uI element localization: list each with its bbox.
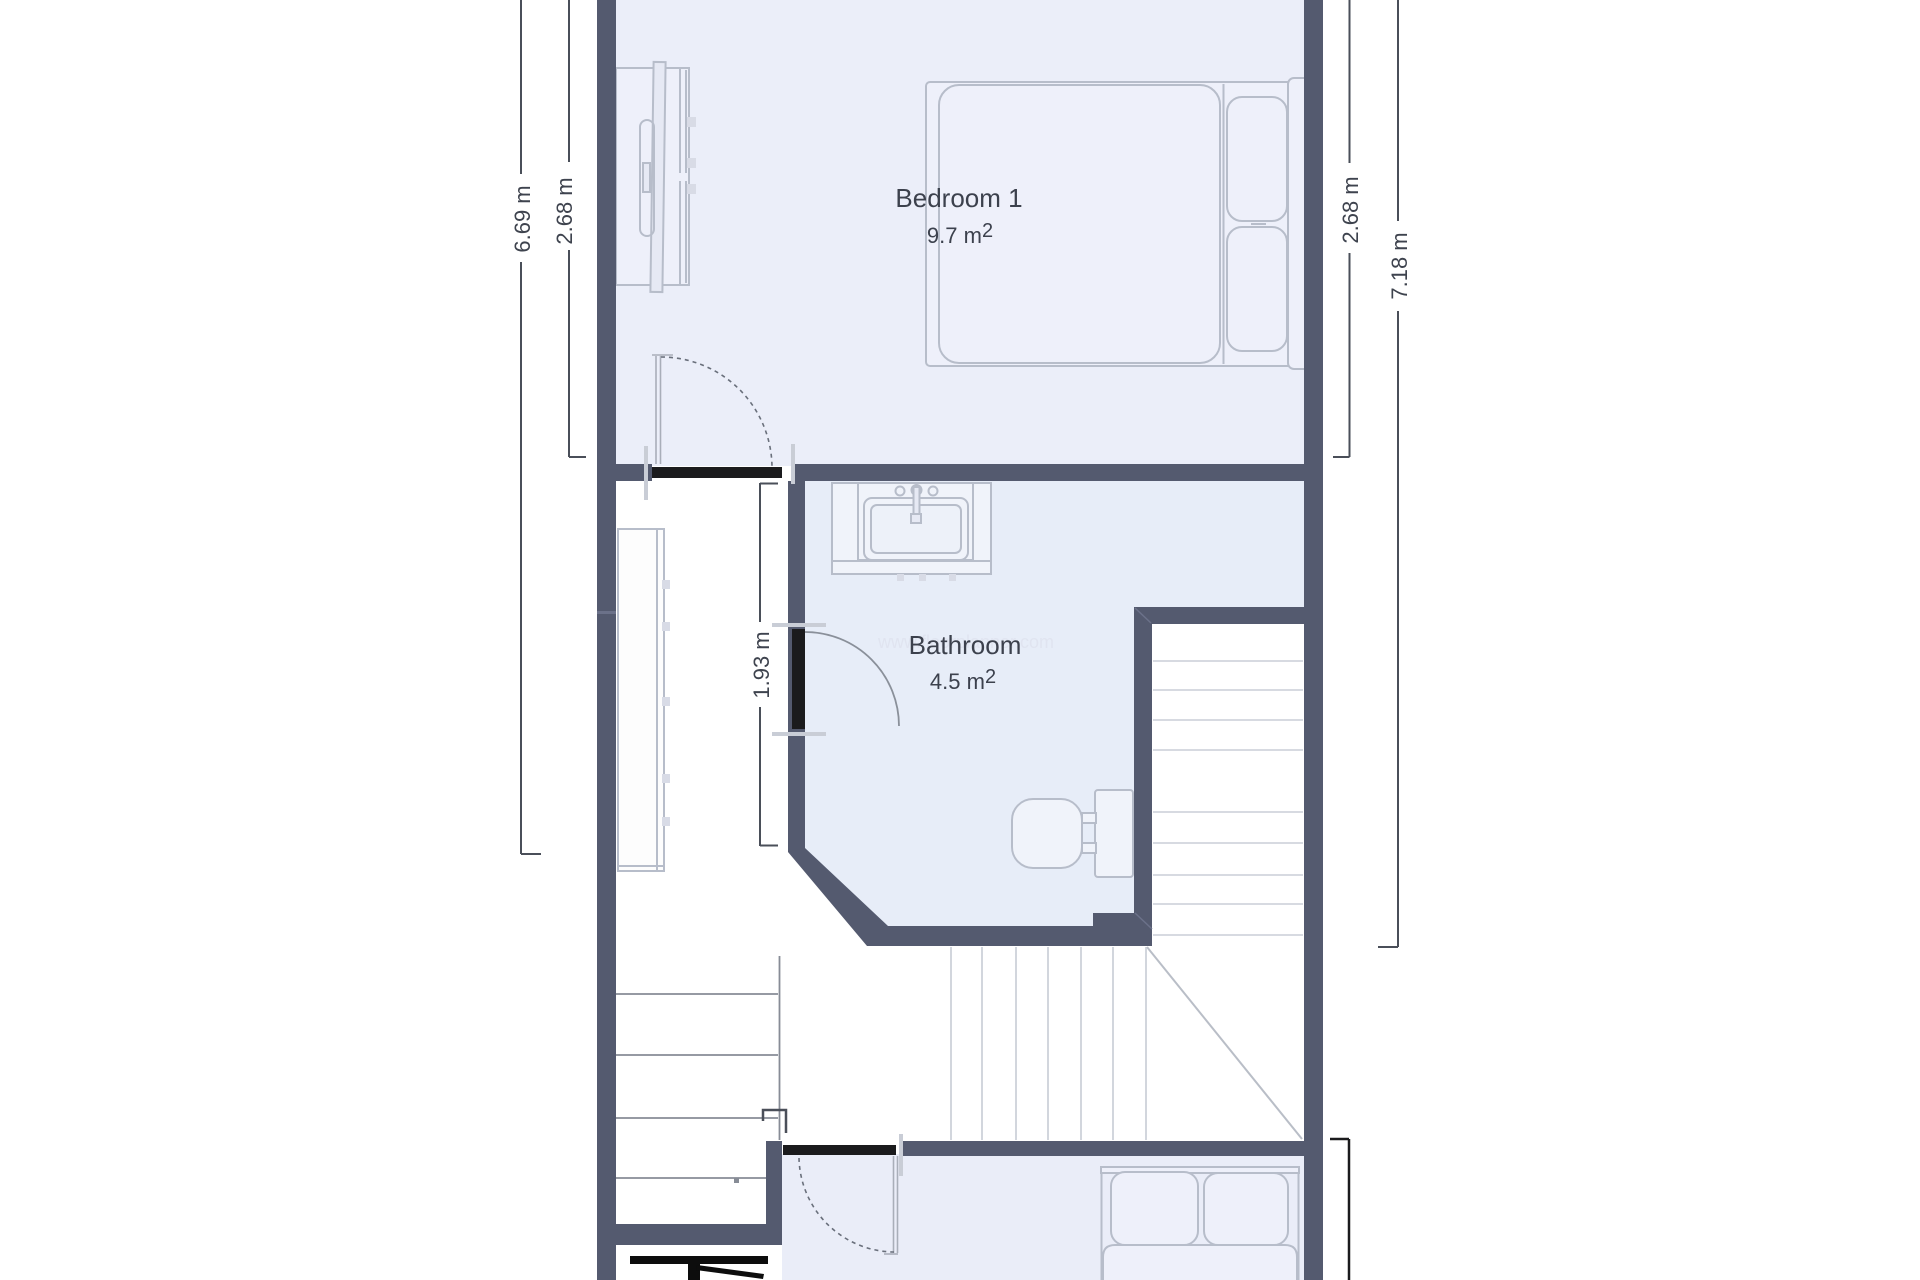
svg-text:Bedroom 1: Bedroom 1 [895, 183, 1022, 213]
svg-text:6.69 m: 6.69 m [510, 185, 535, 252]
svg-text:Bathroom: Bathroom [909, 630, 1022, 660]
svg-text:7.18 m: 7.18 m [1387, 232, 1412, 299]
svg-text:1.93 m: 1.93 m [749, 631, 774, 698]
svg-text:2.68 m: 2.68 m [1338, 176, 1363, 243]
svg-text:2.68 m: 2.68 m [552, 177, 577, 244]
